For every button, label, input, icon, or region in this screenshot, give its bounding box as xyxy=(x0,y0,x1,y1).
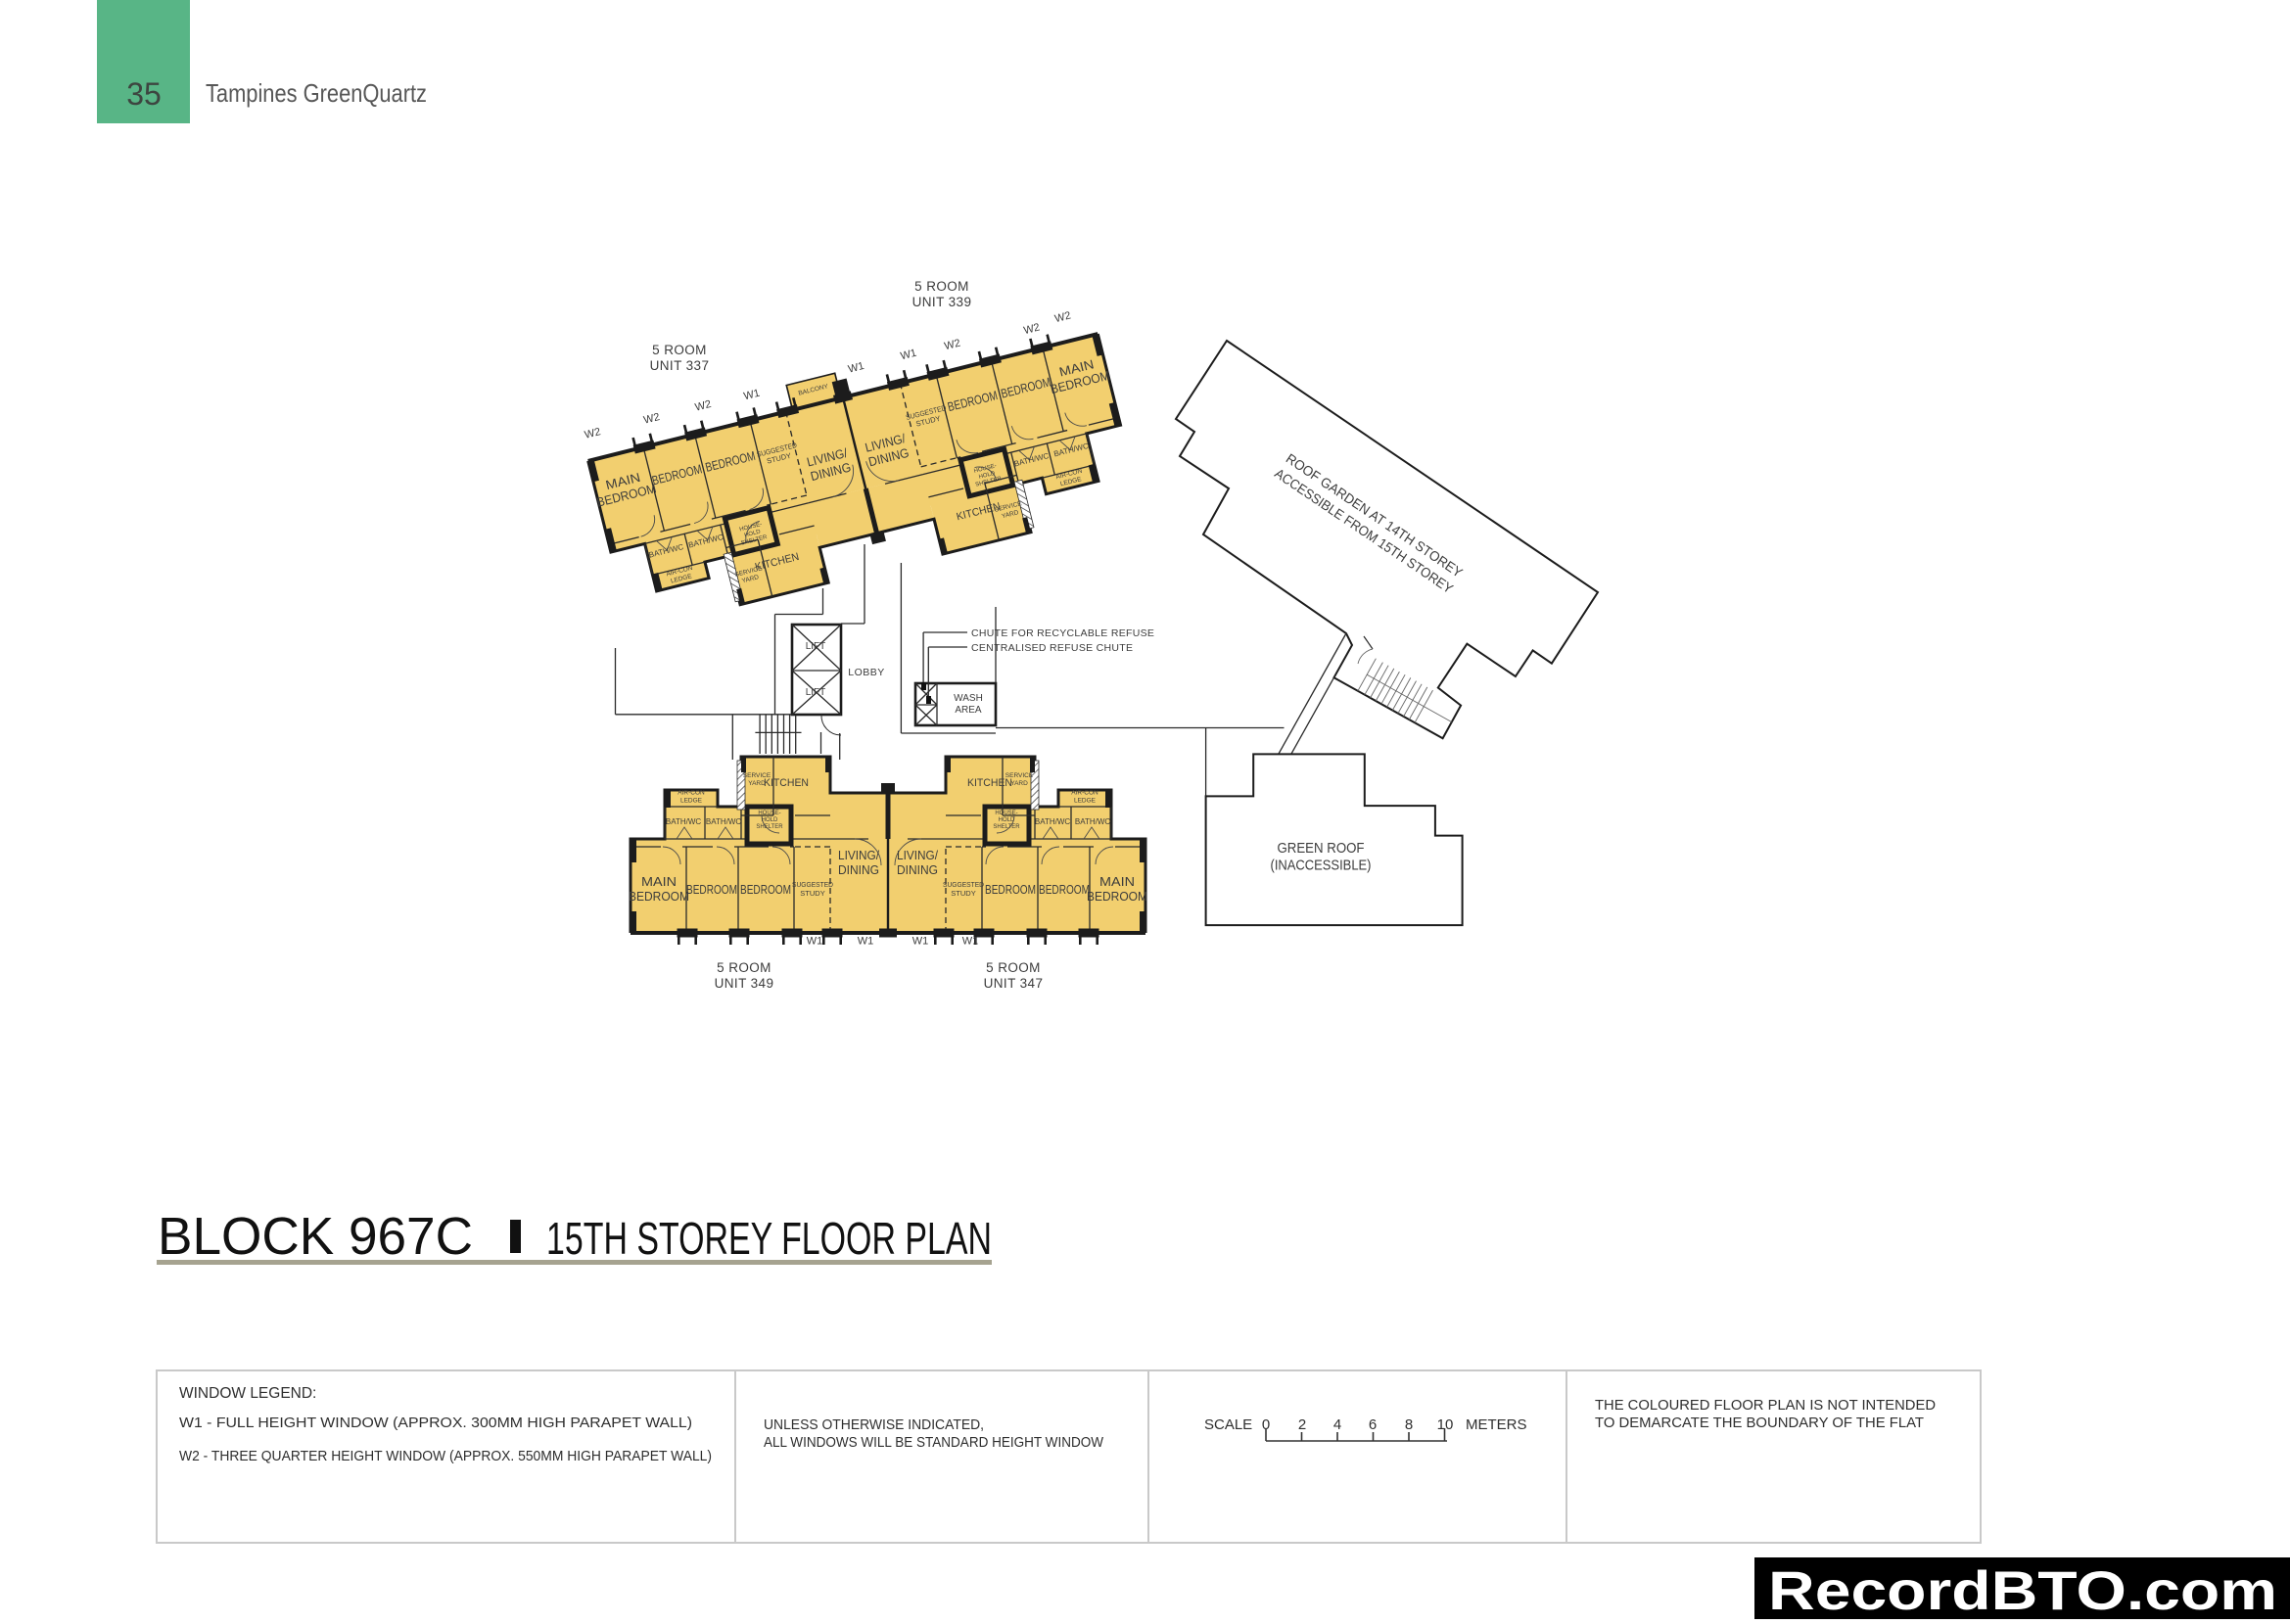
svg-text:W1: W1 xyxy=(807,936,823,948)
svg-text:(INACCESSIBLE): (INACCESSIBLE) xyxy=(1271,858,1372,874)
svg-text:LEDGE: LEDGE xyxy=(680,798,703,805)
svg-text:W1: W1 xyxy=(962,936,979,948)
svg-text:TO DEMARCATE THE BOUNDARY OF T: TO DEMARCATE THE BOUNDARY OF THE FLAT xyxy=(1595,1415,1924,1431)
svg-text:WINDOW LEGEND:: WINDOW LEGEND: xyxy=(179,1385,316,1402)
svg-text:4: 4 xyxy=(1333,1416,1341,1433)
svg-text:BEDROOM: BEDROOM xyxy=(985,882,1036,897)
svg-text:UNIT 347: UNIT 347 xyxy=(984,976,1044,991)
svg-text:MAIN: MAIN xyxy=(1099,874,1135,889)
svg-text:BATH/WC: BATH/WC xyxy=(1075,817,1111,826)
svg-text:BATH/WC: BATH/WC xyxy=(1035,817,1071,826)
svg-text:SERVICE: SERVICE xyxy=(743,772,771,779)
svg-text:W1 - FULL HEIGHT WINDOW (APPR: W1 - FULL HEIGHT WINDOW (APPROX. 300MM H… xyxy=(179,1415,692,1431)
svg-text:SUGGESTED: SUGGESTED xyxy=(792,880,834,889)
svg-text:BLOCK 967C: BLOCK 967C xyxy=(158,1207,473,1266)
svg-text:AIR-CON: AIR-CON xyxy=(678,790,705,797)
svg-text:UNIT 339: UNIT 339 xyxy=(912,295,972,309)
svg-text:Tampines GreenQuartz: Tampines GreenQuartz xyxy=(206,78,427,108)
svg-text:5 ROOM: 5 ROOM xyxy=(914,279,969,294)
svg-text:5 ROOM: 5 ROOM xyxy=(986,960,1041,975)
svg-text:BEDROOM: BEDROOM xyxy=(629,889,689,904)
svg-text:LIFT: LIFT xyxy=(806,641,826,652)
svg-text:6: 6 xyxy=(1369,1416,1377,1433)
svg-text:SUGGESTED: SUGGESTED xyxy=(943,880,985,889)
svg-text:2: 2 xyxy=(1298,1416,1306,1433)
svg-text:HOUSE-: HOUSE- xyxy=(995,811,1017,816)
svg-text:SHELTER: SHELTER xyxy=(993,824,1020,830)
svg-text:W2 - THREE QUARTER HEIGHT WIN: W2 - THREE QUARTER HEIGHT WINDOW (APPROX… xyxy=(179,1448,712,1464)
svg-text:BATH/WC: BATH/WC xyxy=(666,817,702,826)
svg-text:8: 8 xyxy=(1405,1416,1413,1433)
svg-text:SERVICE: SERVICE xyxy=(1005,772,1034,779)
svg-text:GREEN ROOF: GREEN ROOF xyxy=(1278,840,1365,857)
svg-text:SCALE: SCALE xyxy=(1204,1416,1252,1433)
svg-text:UNIT 337: UNIT 337 xyxy=(650,358,710,373)
svg-text:SHELTER: SHELTER xyxy=(756,824,783,830)
svg-text:5 ROOM: 5 ROOM xyxy=(717,960,771,975)
svg-text:UNIT 349: UNIT 349 xyxy=(715,976,774,991)
svg-text:LIVING/: LIVING/ xyxy=(897,848,938,862)
svg-text:BATH/WC: BATH/WC xyxy=(706,817,742,826)
svg-text:LEDGE: LEDGE xyxy=(1074,798,1097,805)
svg-text:HOUSE-: HOUSE- xyxy=(758,811,780,816)
svg-text:AREA: AREA xyxy=(955,705,982,716)
svg-text:LIVING/: LIVING/ xyxy=(838,848,879,862)
svg-text:W1: W1 xyxy=(912,936,929,948)
svg-text:W1: W1 xyxy=(858,936,874,948)
svg-text:DINING: DINING xyxy=(838,862,879,877)
svg-text:BEDROOM: BEDROOM xyxy=(1039,882,1090,897)
svg-text:CHUTE FOR RECYCLABLE REFUSE: CHUTE FOR RECYCLABLE REFUSE xyxy=(971,627,1154,639)
svg-text:LOBBY: LOBBY xyxy=(848,667,885,678)
svg-text:YARD: YARD xyxy=(1010,780,1028,787)
svg-text:35: 35 xyxy=(126,76,162,112)
svg-text:AIR-CON: AIR-CON xyxy=(1071,790,1098,797)
svg-text:YARD: YARD xyxy=(748,780,766,787)
svg-text:BEDROOM: BEDROOM xyxy=(686,882,737,897)
svg-text:THE COLOURED FLOOR PLAN IS NOT: THE COLOURED FLOOR PLAN IS NOT INTENDED xyxy=(1595,1397,1936,1414)
svg-text:STUDY: STUDY xyxy=(800,889,824,898)
svg-text:5 ROOM: 5 ROOM xyxy=(652,343,707,357)
svg-text:BEDROOM: BEDROOM xyxy=(1087,889,1147,904)
svg-text:RecordBTO.com: RecordBTO.com xyxy=(1768,1559,2277,1619)
svg-text:METERS: METERS xyxy=(1466,1416,1527,1433)
svg-text:STUDY: STUDY xyxy=(951,889,975,898)
svg-text:UNLESS OTHERWISE INDICATED,: UNLESS OTHERWISE INDICATED, xyxy=(764,1416,984,1433)
svg-text:BEDROOM: BEDROOM xyxy=(740,882,791,897)
svg-text:HOLD: HOLD xyxy=(999,817,1015,823)
svg-text:WASH: WASH xyxy=(954,693,983,704)
svg-text:HOLD: HOLD xyxy=(762,817,778,823)
svg-text:DINING: DINING xyxy=(897,862,938,877)
svg-text:15TH STOREY FLOOR PLAN: 15TH STOREY FLOOR PLAN xyxy=(546,1213,992,1264)
svg-text:MAIN: MAIN xyxy=(641,874,677,889)
svg-text:LIFT: LIFT xyxy=(806,687,826,698)
svg-text:ALL WINDOWS WILL BE STANDARD H: ALL WINDOWS WILL BE STANDARD HEIGHT WIND… xyxy=(764,1434,1104,1451)
